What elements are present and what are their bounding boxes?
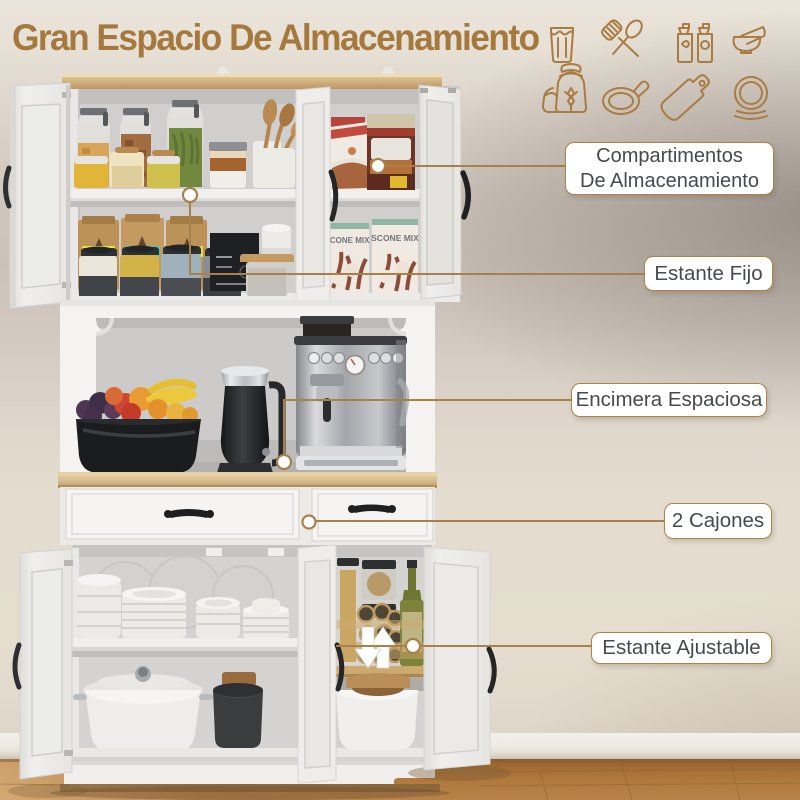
- svg-text:SCONE MIX: SCONE MIX: [371, 233, 419, 243]
- svg-text:SCONE MIX: SCONE MIX: [325, 236, 371, 245]
